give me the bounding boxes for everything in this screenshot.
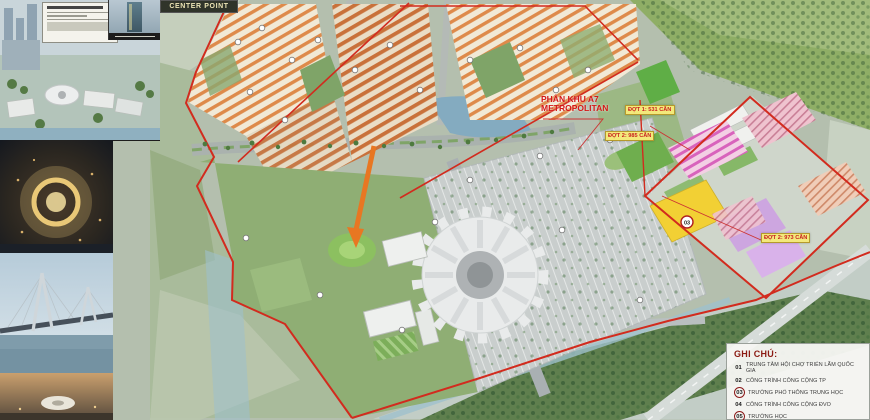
tower-rendering-thumb <box>108 0 160 40</box>
legend-num-01: 01 <box>734 364 743 372</box>
school-plot-marker-label: 03 <box>684 221 690 227</box>
legend-label-02: CÔNG TRÌNH CÔNG CỘNG TP <box>746 378 826 384</box>
tower-caption-bar <box>109 33 160 40</box>
legend-label-03: TRƯỜNG PHỔ THÔNG TRUNG HỌC <box>748 390 843 396</box>
legend-item-03: 03 TRƯỜNG PHỔ THÔNG TRUNG HỌC <box>734 387 863 398</box>
legend-label-05: TRƯỜNG HỌC <box>748 414 787 420</box>
zone-a7-line2: METROPOLITAN <box>541 104 608 113</box>
aerial-night-art <box>0 140 113 253</box>
legend-panel: GHI CHÚ: 01 TRUNG TÂM HỘI CHỢ TRIỂN LÃM … <box>726 343 870 420</box>
legend-title: GHI CHÚ: <box>734 349 863 359</box>
project-info-card <box>42 2 118 43</box>
rendering-bridge <box>0 253 113 374</box>
rendering-aerial-night <box>0 140 113 254</box>
legend-num-04: 04 <box>734 401 743 409</box>
legend-item-02: 02 CÔNG TRÌNH CÔNG CỘNG TP <box>734 377 863 385</box>
phase1-units-chip: ĐỢT 1: 531 CĂN <box>625 105 675 115</box>
rendering-aerial-day <box>0 0 160 141</box>
center-point-label: CENTER POINT <box>160 0 238 13</box>
masterplan-screenshot: 03 CENTER POINT PHÂN KHU A7 METROPOLITAN… <box>0 0 870 420</box>
legend-label-01: TRUNG TÂM HỘI CHỢ TRIỂN LÃM QUỐC GIA <box>746 362 863 374</box>
legend-num-03: 03 <box>734 387 745 398</box>
legend-num-05: 05 <box>734 411 745 420</box>
legend-num-02: 02 <box>734 377 743 385</box>
legend-label-04: CÔNG TRÌNH CÔNG CỘNG ĐVO <box>746 402 831 408</box>
rendering-aerial-dusk <box>0 373 113 420</box>
phase2b-units-chip: ĐỢT 2: 973 CĂN <box>761 233 810 243</box>
school-plot-marker: 03 <box>681 216 693 228</box>
aerial-dusk-art <box>0 373 113 420</box>
zone-a7-label: PHÂN KHU A7 METROPOLITAN <box>541 95 608 113</box>
legend-item-05: 05 TRƯỜNG HỌC <box>734 411 863 420</box>
legend-item-04: 04 CÔNG TRÌNH CÔNG CỘNG ĐVO <box>734 401 863 409</box>
legend-item-01: 01 TRUNG TÂM HỘI CHỢ TRIỂN LÃM QUỐC GIA <box>734 362 863 374</box>
bridge-art <box>0 253 113 373</box>
phase2-units-chip: ĐỢT 2: 985 CĂN <box>605 131 654 141</box>
